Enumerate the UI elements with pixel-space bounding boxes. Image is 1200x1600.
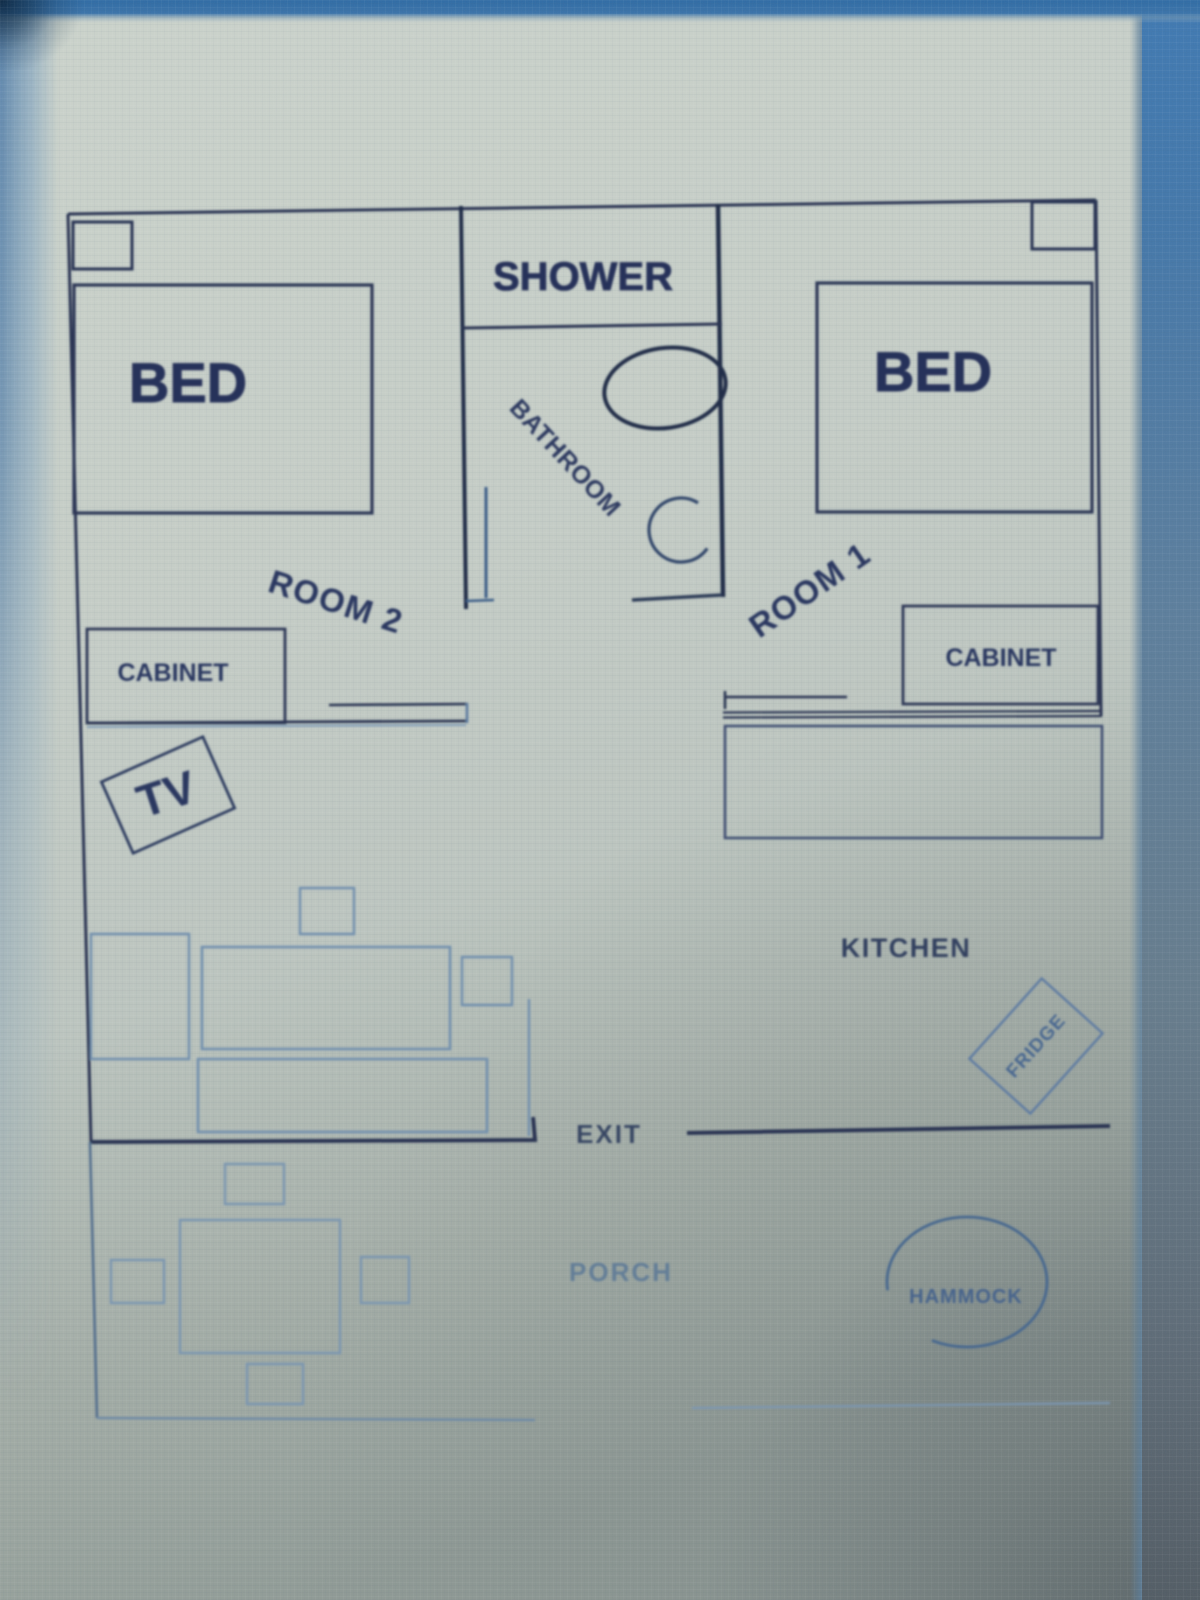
svg-text:CABINET: CABINET bbox=[117, 659, 228, 687]
svg-text:CABINET: CABINET bbox=[945, 644, 1056, 672]
svg-text:PORCH: PORCH bbox=[569, 1257, 673, 1287]
svg-text:BED: BED bbox=[129, 351, 247, 414]
svg-text:EXIT: EXIT bbox=[576, 1119, 642, 1149]
svg-text:BED: BED bbox=[874, 340, 992, 403]
svg-text:HAMMOCK: HAMMOCK bbox=[909, 1286, 1023, 1308]
svg-text:KITCHEN: KITCHEN bbox=[841, 933, 972, 963]
svg-text:SHOWER: SHOWER bbox=[493, 255, 673, 299]
